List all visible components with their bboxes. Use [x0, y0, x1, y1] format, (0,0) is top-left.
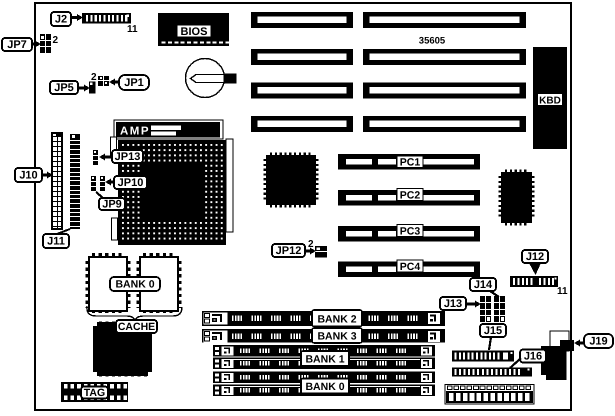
svg-text:J15: J15: [484, 325, 502, 337]
svg-text:JP7: JP7: [7, 39, 27, 51]
svg-text:BANK 0: BANK 0: [115, 279, 154, 291]
svg-text:TAG: TAG: [84, 387, 105, 399]
svg-text:J10: J10: [19, 170, 37, 182]
svg-text:JP12: JP12: [276, 245, 302, 257]
svg-text:JP13: JP13: [115, 151, 141, 163]
svg-text:11: 11: [557, 286, 568, 297]
svg-text:11: 11: [127, 24, 138, 35]
svg-text:J12: J12: [526, 251, 544, 263]
svg-text:J11: J11: [47, 236, 65, 248]
svg-text:JP1: JP1: [124, 77, 144, 89]
svg-text:PC4: PC4: [400, 261, 421, 273]
svg-text:CACHE: CACHE: [118, 321, 155, 333]
svg-text:BIOS: BIOS: [181, 26, 208, 38]
svg-text:PC3: PC3: [400, 225, 421, 237]
svg-text:AMP: AMP: [120, 126, 150, 138]
svg-text:BANK 3: BANK 3: [317, 331, 356, 343]
svg-text:PC1: PC1: [400, 157, 421, 169]
svg-text:BANK 2: BANK 2: [317, 313, 356, 325]
svg-text:JP9: JP9: [102, 199, 122, 211]
svg-text:BANK 1: BANK 1: [305, 353, 344, 365]
svg-text:BANK 0: BANK 0: [305, 381, 344, 393]
svg-text:35605: 35605: [419, 36, 446, 47]
svg-text:JP5: JP5: [54, 82, 74, 94]
svg-text:JP10: JP10: [118, 177, 144, 189]
svg-text:J2: J2: [55, 14, 67, 26]
svg-text:J19: J19: [589, 336, 607, 348]
svg-text:J16: J16: [524, 351, 542, 363]
svg-text:KBD: KBD: [539, 95, 561, 106]
svg-text:2: 2: [91, 72, 97, 83]
svg-text:2: 2: [53, 35, 59, 46]
svg-text:J14: J14: [474, 279, 493, 291]
svg-text:J13: J13: [444, 298, 462, 310]
svg-text:PC2: PC2: [400, 189, 421, 201]
